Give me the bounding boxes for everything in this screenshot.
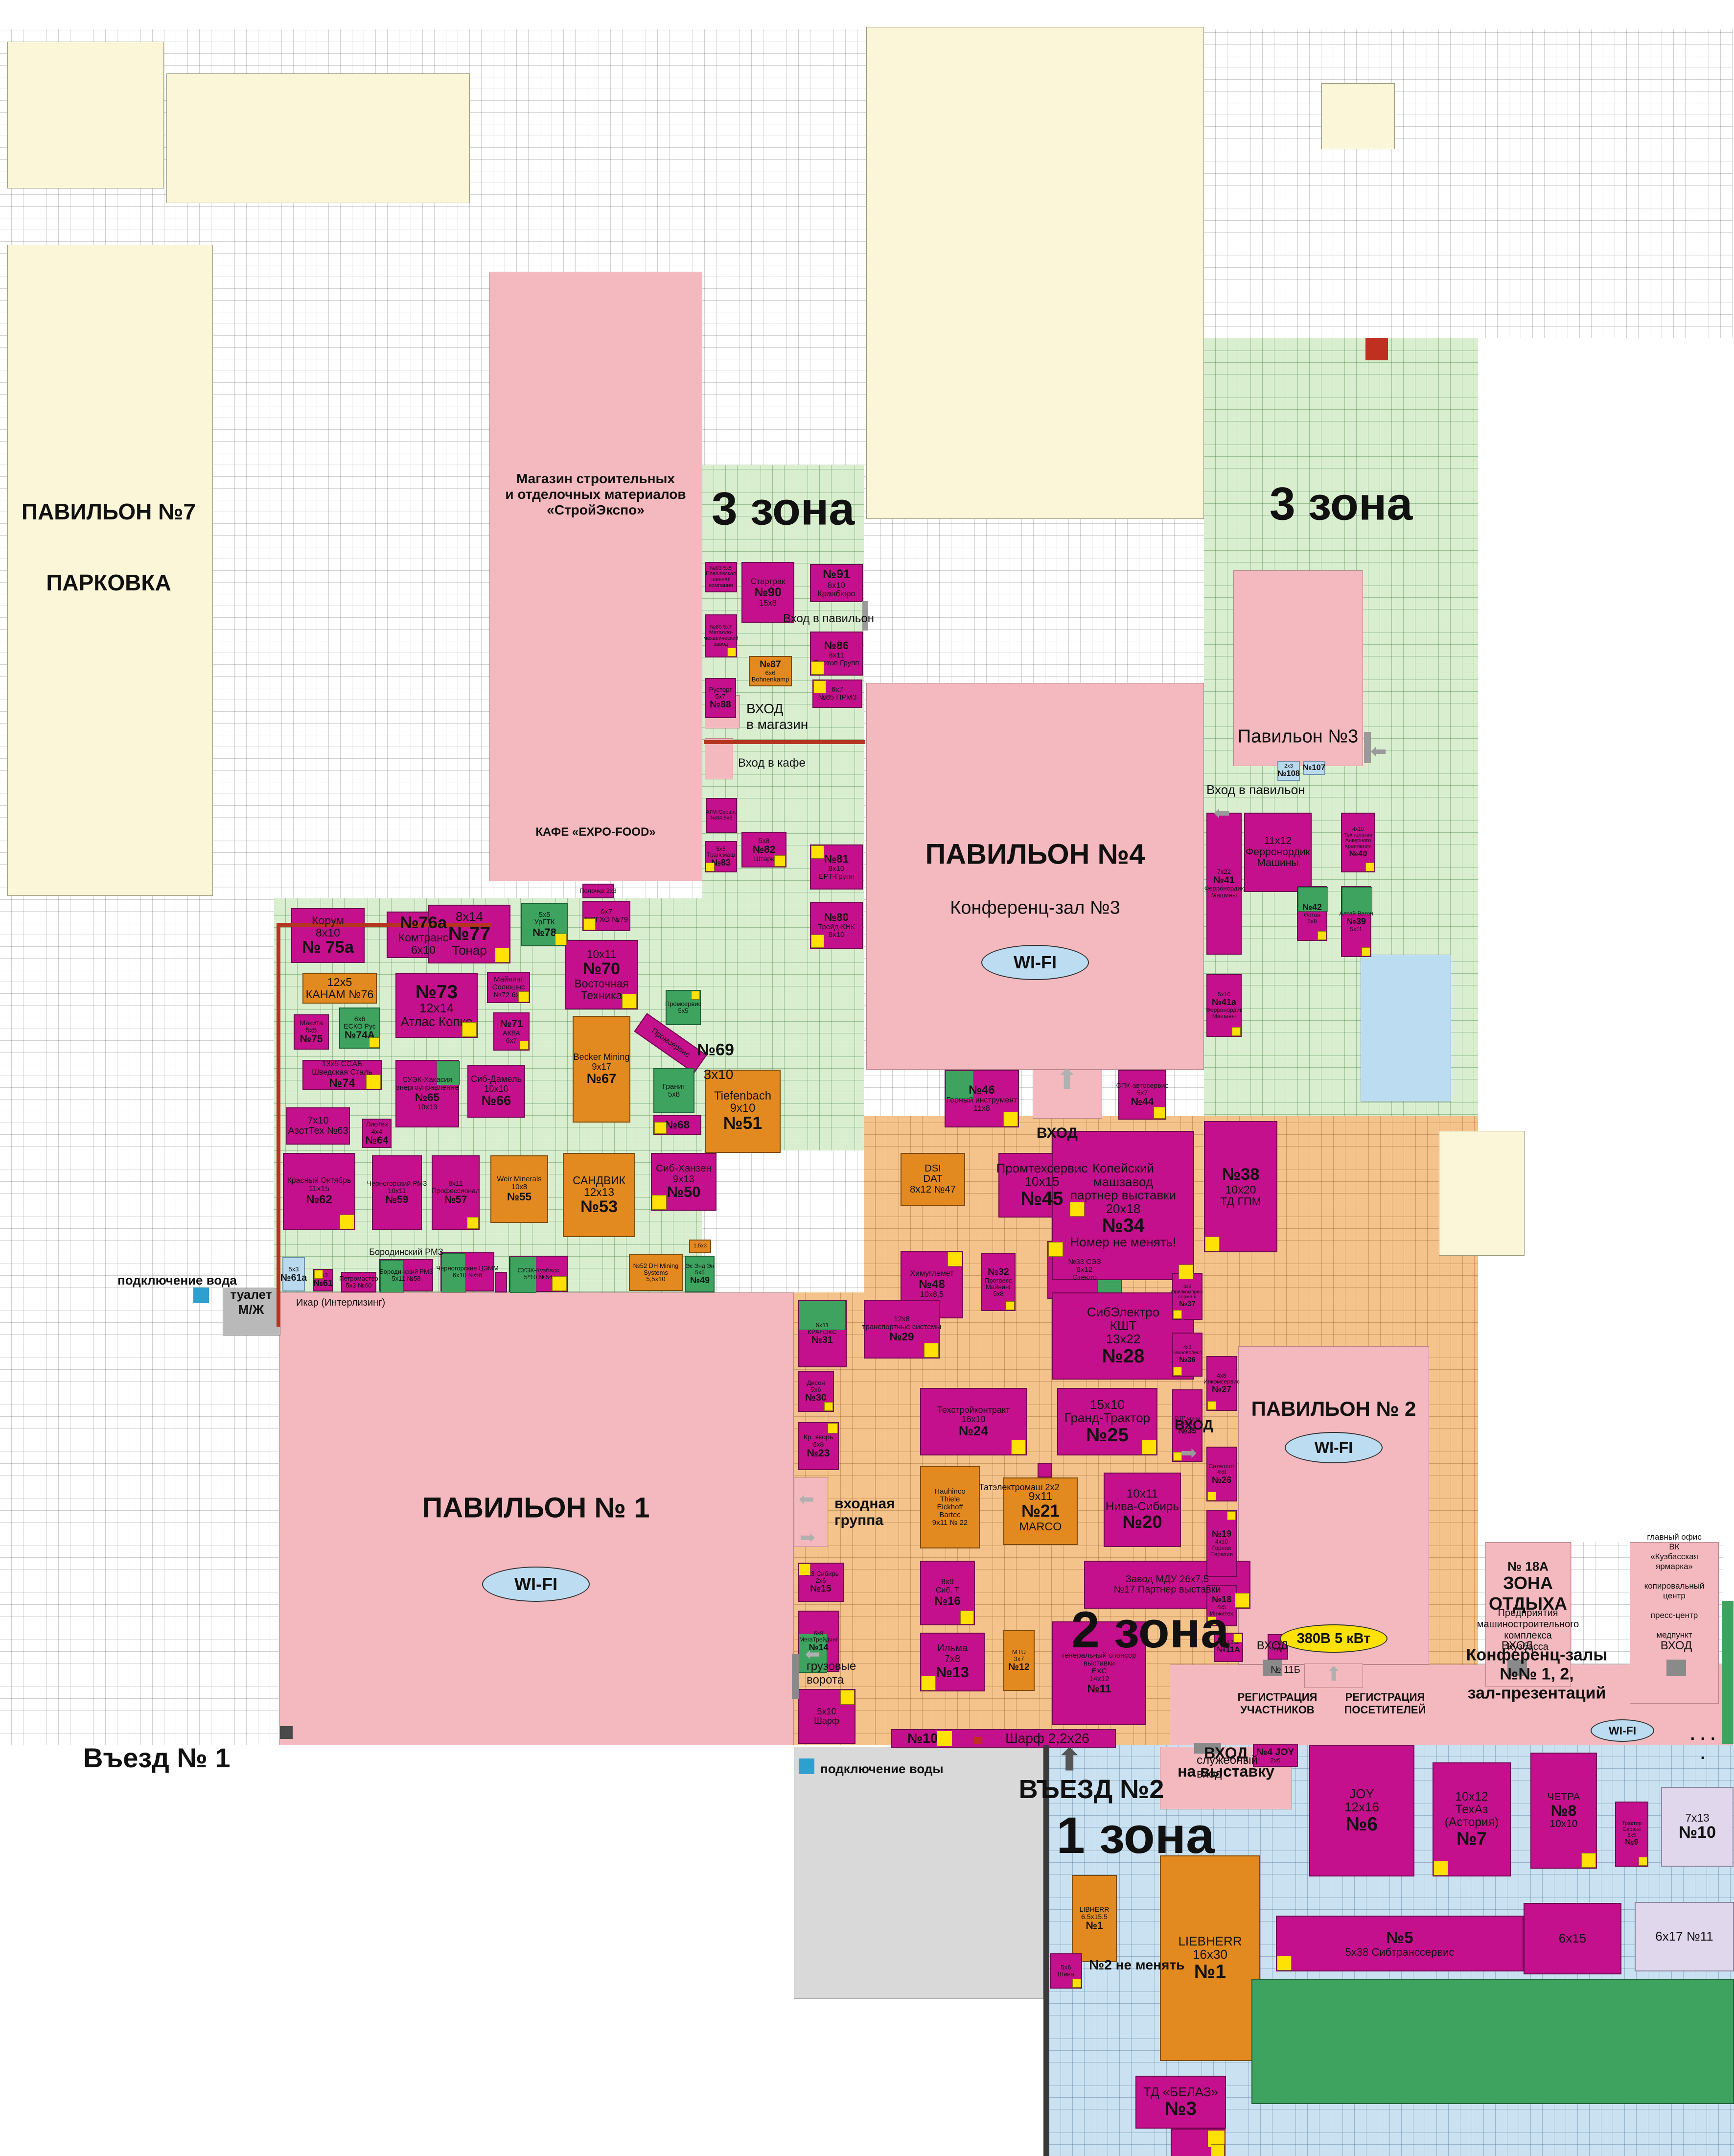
booth-label: №34: [1102, 1216, 1145, 1236]
power-marker: [706, 863, 715, 871]
booth-label: 4x4: [371, 1128, 383, 1135]
power-marker: [369, 1037, 379, 1048]
power-marker: [1233, 1634, 1242, 1642]
booth-label: №41: [1213, 875, 1234, 886]
power-marker: [1639, 1857, 1647, 1866]
booth-label: СПК-автосервис: [1116, 1082, 1169, 1089]
booth-№1: LIBHERR6.5x15.5№1: [1072, 1875, 1117, 1962]
booth: HauhincoThieleEickhoffBartec9x11 № 22: [920, 1466, 980, 1548]
booth-№61а: 5x3№61а: [282, 1257, 305, 1291]
booth-label: ТД «БЕЛАЗ»: [1143, 2086, 1218, 2099]
booth-label: №8: [1551, 1803, 1576, 1819]
booth-label: 6x6: [354, 1015, 366, 1023]
wifi-pavilion-4: WI-FI: [981, 945, 1089, 980]
booth-label: 5x38 Сибтранссервис: [1345, 1946, 1455, 1958]
booth-label: №12: [1008, 1662, 1029, 1672]
booth-label: СУЭК-Хакасия: [402, 1076, 452, 1084]
booth-label: №50: [667, 1184, 701, 1200]
booth-№62: Красный Октябрь11x15№62: [283, 1153, 355, 1230]
booth-label: №70: [583, 960, 620, 978]
booth-label: 5x7: [716, 693, 726, 700]
booth-label: ЕРТ-Групп: [819, 873, 855, 881]
booth-№29: 12x8транспортные системы№29: [864, 1300, 940, 1359]
booth-label: 8x10: [829, 865, 845, 873]
booth: АГМ-Сервис№84 5x5: [706, 798, 737, 833]
booth-label: Кранбюро: [817, 589, 855, 598]
booth-label: №62: [306, 1194, 332, 1206]
booth-label: САНДВИК: [573, 1174, 625, 1186]
booth-label: Прогресс: [985, 1277, 1012, 1284]
booth-№107: №107: [1303, 761, 1325, 775]
gate-1-label: Въезд № 1: [83, 1742, 230, 1774]
booth-№26: Сателлит4x8№26: [1206, 1447, 1237, 1501]
booth-label: №74: [329, 1077, 355, 1089]
pavilion-2: [1238, 1346, 1429, 1664]
booth-label: выставки: [1084, 1660, 1115, 1667]
power-marker: [960, 1611, 974, 1624]
booth-label: №16: [934, 1595, 960, 1607]
booth-№12: MTU3x7№12: [1003, 1630, 1035, 1691]
booth-№9: ТракторСервис5x5№9: [1615, 1802, 1648, 1867]
booth-№73: №7312x14Атлас Копко: [395, 973, 478, 1038]
booth: 12x5КАНАМ №76: [302, 973, 377, 1004]
booth-label: №48: [919, 1278, 945, 1290]
booth-label: 10x10: [484, 1084, 508, 1094]
pavilion-3-door: [1364, 732, 1371, 763]
booth-label: Tiefenbach: [714, 1090, 771, 1102]
booth-label: №28: [1102, 1346, 1145, 1366]
sharf-yellow: [937, 1731, 952, 1746]
booth-label: 5x5: [695, 1269, 704, 1276]
booth-label: №6: [1346, 1814, 1378, 1834]
wifi-pavilion-1: WI-FI: [482, 1567, 590, 1602]
booth-label: 10x12: [1455, 1791, 1488, 1804]
booth-label: 6x10 №56: [453, 1272, 482, 1279]
booth-label: №38: [1222, 1166, 1259, 1184]
booth-label: №20: [1122, 1513, 1162, 1532]
power-marker: [811, 845, 824, 859]
booth-№41а: 5x10№41аФерронордикМашины: [1206, 974, 1242, 1037]
booth-label: Гранит: [662, 1083, 686, 1091]
cargo-gate-bar: [792, 1654, 799, 1699]
booth-label: Русторг: [709, 686, 732, 693]
booth-label: 1,5x3: [694, 1243, 707, 1249]
booth-label: №30: [805, 1393, 826, 1403]
booth-label: Майнинг: [986, 1284, 1011, 1290]
booth-№65: СУЭК-Хакасияэнергоуправление№6510x13: [395, 1060, 459, 1127]
booth-label: 13x5 ССАБ: [322, 1060, 362, 1069]
booth-label: №64: [366, 1135, 389, 1146]
booth-label: №87: [760, 659, 781, 670]
booth-№24: Техстройконтракт16x10№24: [920, 1388, 1027, 1455]
booth-label: 12x16: [1344, 1801, 1379, 1814]
booth-label: Полочка 2x3: [579, 888, 617, 894]
booth-label: №61а: [280, 1273, 307, 1283]
power-marker: [1362, 947, 1370, 956]
booth-№59: Черногорский РМЗ10x11№59: [372, 1155, 422, 1230]
booth-label: шинная: [711, 577, 730, 583]
booth-label: компания: [709, 583, 733, 589]
pavilion-4-entrance-arrow: ⬆: [1056, 1063, 1079, 1096]
booth-label: 5x8: [759, 837, 770, 844]
power-marker: [1154, 1107, 1166, 1119]
booth-label: Weir Minerals: [497, 1175, 541, 1183]
booth-label: 5x8: [668, 1091, 680, 1099]
booth-label: №82: [753, 844, 776, 855]
pavilion-1-title: ПАВИЛЬОН № 1: [422, 1492, 650, 1524]
booth-69-size: 3x10: [704, 1067, 734, 1082]
power-marker: [1232, 1027, 1241, 1036]
power-marker: [467, 1217, 479, 1229]
booth-label: №25: [1086, 1425, 1129, 1445]
power-marker: [1003, 1112, 1018, 1126]
booth: Черногорские ЦЭММ6x10 №56: [440, 1252, 494, 1291]
booth-label: №81: [824, 853, 849, 865]
booth-label: MTU: [1012, 1649, 1026, 1656]
booth-label: 5x11 №58: [392, 1275, 420, 1282]
power-marker: [1179, 1265, 1193, 1279]
booth-label: Сиб-Ханзен: [656, 1163, 712, 1174]
conference-halls-title: Конференц-залы №№ 1, 2, зал-презентаций: [1466, 1646, 1608, 1703]
power-marker: [813, 680, 826, 693]
power-marker: [1365, 863, 1374, 871]
booth-№88: Русторг5x7№88: [705, 678, 736, 718]
booth-№75а: Корум8x10№ 75а: [291, 908, 365, 963]
booth-label: 5x5: [678, 1008, 689, 1014]
booth-№39: Алтай Вагон№395x11: [1341, 886, 1371, 957]
power-marker: [366, 1075, 381, 1089]
booth-label: №32: [988, 1267, 1009, 1277]
pavilion-3-title: Павильон №3: [1238, 726, 1358, 748]
booth-label: 5x3 №60: [346, 1282, 372, 1289]
booth-label: №44: [1131, 1097, 1154, 1107]
booth-label: №52 DH Mining: [633, 1263, 679, 1269]
power-marker: [552, 1276, 567, 1291]
booth-№108: 2x3№108: [1277, 761, 1300, 781]
booth-№38: №3810x20ТД ГПМ: [1204, 1121, 1277, 1252]
toilet-label: туалет М/Ж: [231, 1287, 272, 1317]
booth-label: 5x6: [1061, 1964, 1071, 1971]
power-marker: [811, 935, 824, 948]
registration-visitors: РЕГИСТРАЦИЯ ПОСЕТИТЕЛЕЙ: [1344, 1691, 1426, 1716]
booth-label: №78: [532, 927, 556, 938]
water-point-1: [193, 1288, 209, 1303]
booth-label: 20x18: [1106, 1202, 1141, 1216]
booth: 1,5x3: [689, 1240, 711, 1253]
booth: 6x15: [1524, 1903, 1621, 1974]
booth-№41: 7x22№41ФерронордикМашины: [1206, 813, 1242, 955]
booth-label: Штарк: [754, 855, 774, 863]
booth-№31: 6x11КРАНЭКС№31: [798, 1300, 847, 1367]
booth-label: Шина: [1058, 1971, 1074, 1978]
booth-label: 10x8,5: [920, 1291, 944, 1299]
booth-№13: Ильма7x8№13: [920, 1633, 985, 1691]
booth: №89 5x7Металло-механическийзавод: [705, 614, 737, 657]
booth-label: 9x17: [592, 1062, 611, 1072]
booth-label: машзавод: [1093, 1175, 1153, 1189]
top-building: [866, 27, 1204, 519]
booth-№86: №868x11Биотоп Групп: [810, 632, 863, 676]
booth: [1038, 1463, 1052, 1477]
booth-label: Машины: [1257, 858, 1299, 869]
zone-3-label-left: 3 зона: [712, 483, 855, 536]
booth-label: №41а: [1212, 998, 1236, 1007]
booth-label: №13: [936, 1664, 969, 1680]
power-marker: [1211, 2144, 1225, 2156]
power-marker: [652, 1195, 667, 1210]
booth-label: Фотон: [1304, 912, 1320, 918]
booth-label: Химуглемет: [910, 1270, 953, 1278]
green-strip: [1722, 1601, 1734, 1744]
booth-label: №19: [1212, 1529, 1231, 1539]
booth-label: 8x14: [456, 911, 483, 924]
booth-№8: ЧЕТРА№810x10: [1530, 1753, 1597, 1869]
pavilion-2-bottom-arrow: ⬆: [1325, 1663, 1342, 1686]
booth-label: 10x10: [1550, 1819, 1578, 1829]
pavilion-entrance-top-label: Вход в павильон: [783, 612, 874, 626]
booth-label: №5: [1386, 1929, 1413, 1946]
mid-right-cream: [1439, 1131, 1525, 1256]
booth-18a-number: № 18А: [1507, 1559, 1549, 1574]
booth-label: № 75а: [302, 938, 354, 957]
booth-№25: 15x10Гранд-Трактор№25: [1057, 1388, 1157, 1455]
booth-№78: 5x5УрГТК№78: [521, 903, 568, 946]
booth-label: Сиб. Т: [936, 1587, 959, 1595]
booth: Промсервис5x5: [666, 990, 701, 1025]
booth-label: Майнинг: [494, 976, 523, 984]
booth-label: №40: [1349, 850, 1367, 858]
power-marker: [1207, 1492, 1216, 1500]
booth-№74А: 6x6ЕСКО Рус№74А: [339, 1008, 380, 1049]
water-point-2: [799, 1758, 814, 1774]
power-marker: [622, 994, 637, 1008]
power-marker: [495, 948, 509, 962]
power-marker: [314, 1270, 323, 1279]
entrance-group-arrow-2: ➡: [800, 1526, 815, 1548]
booth-label: энергоуправление: [396, 1084, 459, 1092]
booth-label: 16x10: [961, 1415, 985, 1424]
booth-№64: Лиотех4x4№64: [362, 1119, 392, 1148]
booth-№50: Сиб-Ханзен9x13№50: [651, 1153, 717, 1211]
power-marker: [1006, 1301, 1015, 1310]
power-marker: [1433, 1861, 1448, 1875]
parking-strip-1: [7, 42, 164, 188]
power-marker: [924, 1343, 939, 1358]
power-marker: [824, 1402, 833, 1411]
booth-label: Гранд-Трактор: [1064, 1411, 1150, 1425]
booth-label: 10x15: [1025, 1175, 1060, 1189]
cafe-right: [1361, 955, 1451, 1101]
booth-№82: 5x8№82Штарк: [741, 832, 786, 867]
booth-label: №17 Партнер выставки: [1113, 1585, 1221, 1595]
booth-label: 6x7: [832, 686, 843, 694]
gate-2-arrow: ⬆: [1056, 1742, 1083, 1779]
red-line-shop: [704, 740, 865, 744]
booth-label: Машины: [1211, 892, 1237, 899]
booth-№68: №68: [653, 1115, 701, 1135]
booth-label: 7x8: [945, 1654, 961, 1665]
booth-label: Шарф: [814, 1716, 839, 1726]
booth-label: Трейд-КНК: [818, 923, 855, 931]
small-cream-building: [1321, 83, 1395, 149]
booth-label: Стекло: [1072, 1274, 1097, 1282]
zone-1-label: 1 зона: [1056, 1806, 1214, 1865]
booth: 7x10АзотТех №63: [286, 1107, 350, 1145]
booth-label: 6x7: [601, 908, 612, 916]
booth-label: №21: [1021, 1502, 1060, 1520]
power-marker: [462, 1022, 477, 1037]
booth-label: №15: [810, 1584, 831, 1594]
booth-label: 12x14: [419, 1002, 454, 1015]
booth-label: №86: [824, 640, 849, 652]
booth-label: Горная: [1212, 1545, 1231, 1551]
booth-label: 5x6: [811, 1386, 821, 1393]
power-marker: [1048, 1242, 1063, 1257]
booth-№19: №194x10ГорнаяЕвразия: [1206, 1510, 1237, 1577]
entrance-group-label: входная группа: [834, 1496, 895, 1529]
booth-label: 8x9: [941, 1578, 954, 1587]
booth-label: №84 5x5: [711, 816, 733, 821]
booth-label: 8x10: [828, 581, 845, 590]
booth-label: 10x20: [1225, 1184, 1256, 1195]
booth-label: 7x13: [1685, 1812, 1709, 1824]
booth: Бородинский РМЗ5x11 №58: [379, 1259, 433, 1291]
booth: 6x7ППГХО №79: [582, 901, 630, 931]
power-marker: [583, 918, 596, 931]
booth-label: 11x15: [309, 1185, 329, 1194]
booth-label: №71: [500, 1019, 523, 1030]
booth: №52 DH MiningSystems5,5x10: [629, 1254, 683, 1291]
wifi-conference: WI-FI: [1591, 1719, 1654, 1742]
booth-label: Профессионал: [432, 1187, 480, 1195]
booth-label: Промтехсервис: [996, 1162, 1088, 1175]
power-marker: [1072, 1979, 1081, 1988]
entry-label-1: ВХОД: [1257, 1639, 1289, 1653]
booth-label: АзотТех №63: [288, 1126, 348, 1136]
gate-2-label: ВЪЕЗД №2: [1019, 1774, 1164, 1804]
booth-label: Ферронордик: [1206, 1007, 1242, 1013]
pavilion-4-entrance-label: ВХОД: [1037, 1125, 1078, 1142]
booth-label: 14x12: [1089, 1675, 1110, 1683]
booth-label: №42: [1302, 903, 1322, 912]
pavilion-4-title: ПАВИЛЬОН №4: [925, 838, 1145, 871]
booth-label: 5x7: [1137, 1089, 1148, 1097]
booth-label: 9x13: [673, 1174, 695, 1185]
power-marker: [921, 1676, 936, 1690]
booth-label: 11x8: [973, 1105, 990, 1113]
booth-label: Промсервис: [665, 1001, 701, 1008]
booth-№37: 4x6Орелкомпрес-сормаш№37: [1172, 1273, 1202, 1320]
booth-label: 8x11: [829, 652, 844, 659]
booth-label: Макита: [300, 1019, 323, 1027]
booth-label: ЧЕТРА: [1547, 1792, 1580, 1803]
booth-label: 10x11: [388, 1187, 406, 1195]
parking-strip-2: [166, 73, 470, 203]
booth: Петромастер5x3 №60: [341, 1272, 376, 1292]
zone-top-right-white: [1204, 29, 1733, 338]
power-marker: [1173, 1367, 1182, 1376]
booth: [495, 1272, 507, 1292]
booth-label: №27: [1212, 1385, 1231, 1394]
booth-label: 5x10: [817, 1707, 836, 1716]
zone1-border: [1043, 1745, 1049, 2156]
booth-№74: 13x5 ССАБШведская Сталь№74: [302, 1060, 382, 1090]
sharf-red-dot: [974, 1737, 981, 1744]
booth: Полочка 2x3: [582, 884, 614, 898]
booth-label: Крепления: [1344, 844, 1371, 850]
booth-label: Eickhoff: [937, 1503, 963, 1511]
booth-label: Ферронордик: [1204, 885, 1244, 892]
booth-label: Нива-Сибирь: [1106, 1500, 1179, 1513]
booth-label: 12x5: [327, 976, 352, 988]
sharf-bar-number: №10: [907, 1731, 938, 1746]
booth-label: №68: [665, 1119, 690, 1131]
booth-label: Восточная: [575, 978, 629, 989]
booth-№15: ЧКЗ Сибирь2x6№15: [798, 1563, 844, 1602]
booth-label: Бородинский РМЗ: [379, 1268, 433, 1275]
borodinsky-label: Бородинский РМЗ: [369, 1247, 443, 1258]
booth-label: LIEBHERR: [1178, 1935, 1242, 1948]
booth-label: партнер выставки: [1070, 1189, 1176, 1202]
booth: 6x17 №11: [1635, 1902, 1734, 1971]
booth: 5x6Шина: [1050, 1953, 1082, 1989]
booth-label: Сервис: [1622, 1827, 1641, 1833]
booth-label: 12x13: [584, 1186, 614, 1198]
booth-label: №73: [416, 982, 458, 1002]
booth-label: 15x10: [1090, 1398, 1125, 1412]
power-marker: [1581, 1853, 1596, 1868]
booth-№46: №46Горный инструмент11x8: [945, 1070, 1019, 1127]
power-marker: [1235, 1593, 1249, 1608]
booth-№23: Кр. якорь6x8№23: [798, 1422, 839, 1470]
booth-label: 8x11: [448, 1180, 462, 1187]
pavilion-3-arrow: ⬅: [1370, 740, 1387, 763]
booth-label: №7: [1457, 1829, 1487, 1848]
booth-label: КАНАМ №76: [306, 988, 374, 1001]
booth-label: АКВА: [503, 1030, 520, 1037]
booth-label: Bohnenkamp: [752, 676, 789, 683]
booth-label: Кр. якорь: [804, 1433, 833, 1441]
booth-label: DAT: [923, 1174, 942, 1185]
pavilion-entrance-arrow: ⬅: [1214, 802, 1230, 824]
zone-3-label-right: 3 зона: [1270, 478, 1412, 531]
booth-№71: №71АКВА6x7: [493, 1012, 530, 1051]
booth: СУЭК-Кузбасс5*10 №54: [509, 1256, 568, 1292]
booth-label: СУЭК-Кузбасс: [517, 1267, 559, 1274]
admin-block-text: главный офис ВК «Кузбасская ярмарка» коп…: [1644, 1532, 1705, 1640]
booth-label: ТД ГПМ: [1220, 1195, 1261, 1207]
booth-label: Завод МДУ 26x7,5: [1126, 1574, 1209, 1585]
booth-label: №3: [1165, 2099, 1197, 2119]
booth-№36: 4x6ТехноКолесо№36: [1172, 1333, 1202, 1377]
booth-label: №49: [690, 1276, 710, 1285]
booth-label: Тонар: [452, 944, 486, 958]
booth-label: №85 ПРМЗ: [818, 694, 856, 702]
booth-label: №9: [1625, 1838, 1639, 1847]
power-marker: [1227, 1511, 1236, 1520]
booth-№3: ТД «БЕЛАЗ»№3: [1135, 2076, 1226, 2129]
pavilion-2-entrance-label: ВХОД: [1175, 1417, 1213, 1433]
booth-№49: Эс Энд Эн5x5№49: [685, 1256, 715, 1292]
booth-label: 6x10: [411, 944, 436, 956]
booth-label: 10x8: [511, 1183, 528, 1191]
corner-mark: [280, 1726, 293, 1739]
booth-label: 5x5: [306, 1027, 317, 1034]
booth-label: 7x10: [307, 1116, 328, 1126]
booth-label: №67: [587, 1072, 617, 1086]
booth-label: №1: [1194, 1962, 1226, 1982]
booth-label: №37: [1179, 1300, 1195, 1308]
